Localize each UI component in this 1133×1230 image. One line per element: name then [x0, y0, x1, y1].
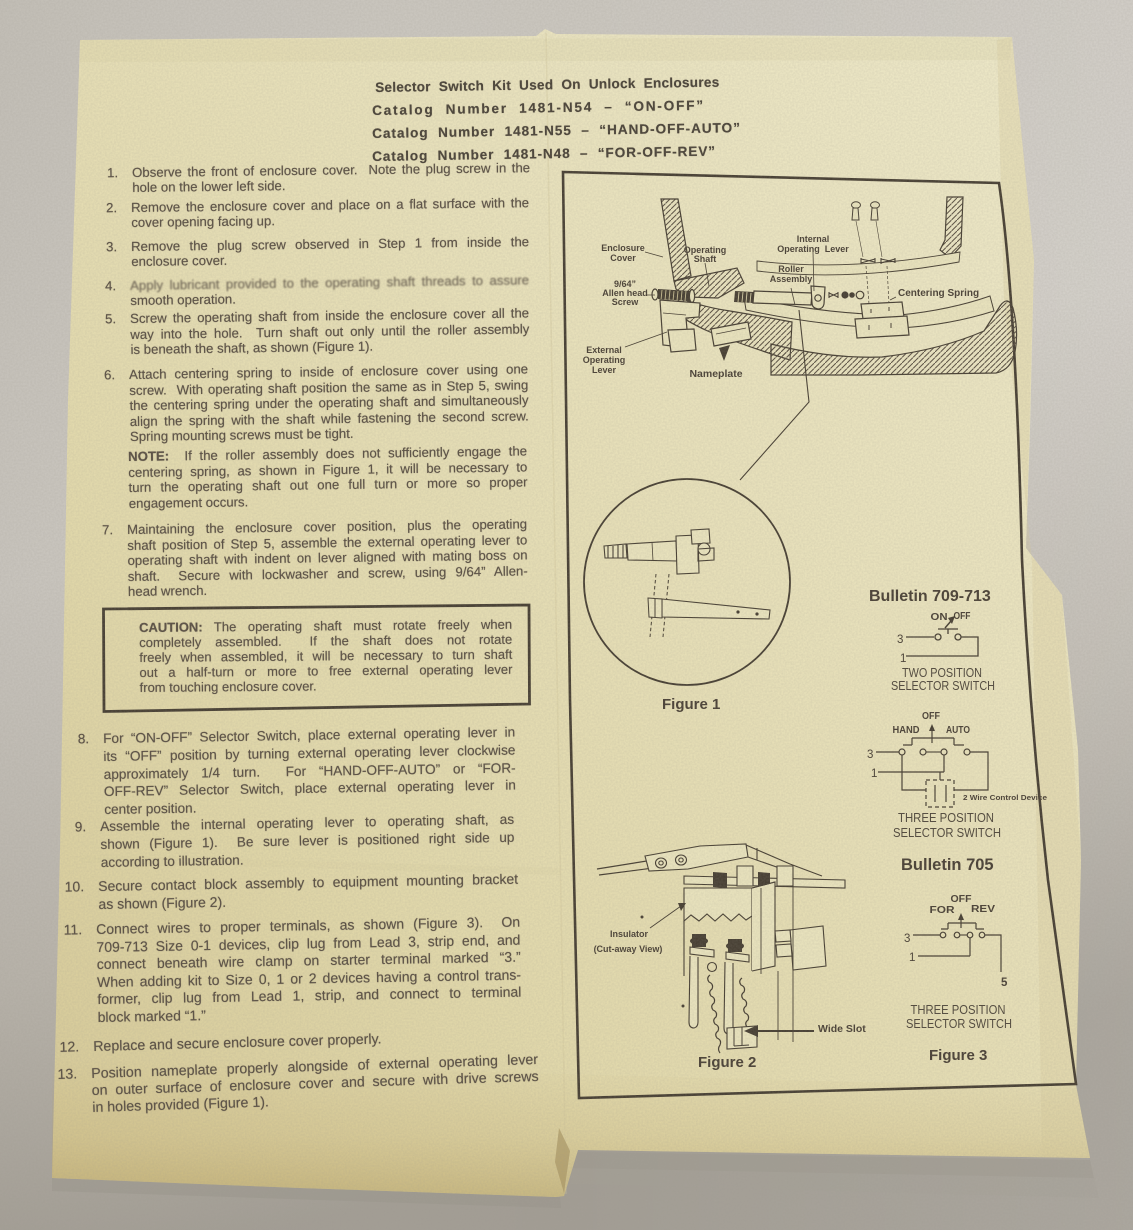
svg-text:AUTO: AUTO: [946, 725, 970, 736]
svg-text:THREE POSITION: THREE POSITION: [898, 811, 994, 825]
svg-text:HAND: HAND: [893, 725, 920, 736]
svg-text:3: 3: [867, 749, 873, 761]
svg-text:Enclosure: Enclosure: [601, 243, 645, 253]
svg-text:SELECTOR SWITCH: SELECTOR SWITCH: [893, 826, 1001, 840]
svg-text:OFF: OFF: [954, 611, 971, 622]
svg-text:Internal: Internal: [797, 234, 830, 244]
svg-text:Screw: Screw: [612, 297, 640, 307]
svg-text:Shaft: Shaft: [694, 254, 717, 264]
svg-text:Bulletin 705: Bulletin 705: [901, 856, 994, 874]
svg-text:1: 1: [871, 768, 877, 780]
svg-text:Figure 3: Figure 3: [929, 1047, 987, 1064]
svg-text:3: 3: [904, 933, 910, 945]
svg-text:External: External: [586, 345, 622, 355]
svg-text:Wide Slot: Wide Slot: [818, 1023, 866, 1035]
svg-text:5: 5: [1001, 977, 1008, 989]
svg-text:THREE POSITION: THREE POSITION: [911, 1003, 1006, 1017]
svg-text:FOR: FOR: [930, 904, 955, 916]
svg-text:REV: REV: [971, 903, 995, 915]
svg-text:Roller: Roller: [778, 264, 804, 274]
svg-text:Cover: Cover: [610, 253, 636, 263]
svg-text:ON: ON: [931, 612, 948, 623]
svg-text:Centering Spring: Centering Spring: [898, 288, 979, 299]
svg-text:Lever: Lever: [592, 365, 617, 375]
svg-text:Operating: Operating: [583, 355, 626, 365]
svg-text:OFF: OFF: [922, 711, 940, 722]
svg-text:Operating Lever: Operating Lever: [777, 244, 849, 254]
svg-text:Nameplate: Nameplate: [689, 368, 742, 380]
svg-text:1: 1: [909, 952, 915, 964]
svg-text:Figure 2: Figure 2: [698, 1054, 756, 1071]
svg-text:Assembly: Assembly: [770, 274, 813, 284]
svg-text:Figure 1: Figure 1: [662, 696, 720, 713]
svg-text:SELECTOR SWITCH: SELECTOR SWITCH: [891, 678, 995, 693]
svg-text:1: 1: [900, 653, 906, 665]
svg-text:Insulator: Insulator: [610, 929, 649, 939]
svg-text:SELECTOR SWITCH: SELECTOR SWITCH: [906, 1017, 1012, 1031]
svg-text:(Cut-away View): (Cut-away View): [594, 944, 663, 954]
svg-text:Bulletin 709-713: Bulletin 709-713: [869, 588, 991, 605]
svg-text:3: 3: [897, 634, 903, 646]
svg-text:2 Wire Control Device: 2 Wire Control Device: [963, 793, 1047, 802]
